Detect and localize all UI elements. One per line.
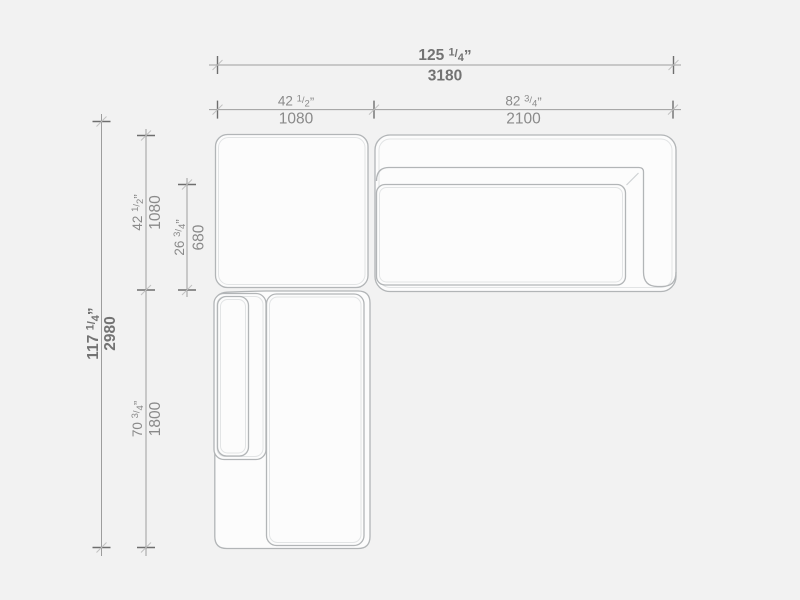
svg-text:1800: 1800 <box>147 401 164 436</box>
svg-text:2980: 2980 <box>102 316 119 350</box>
svg-text:1080: 1080 <box>279 111 314 128</box>
svg-text:1080: 1080 <box>147 195 164 230</box>
svg-text:125 1/4”: 125 1/4” <box>418 47 471 66</box>
svg-text:680: 680 <box>191 224 208 250</box>
svg-text:3180: 3180 <box>428 68 462 85</box>
svg-text:117 1/4”: 117 1/4” <box>85 307 104 359</box>
svg-text:2100: 2100 <box>506 111 541 128</box>
